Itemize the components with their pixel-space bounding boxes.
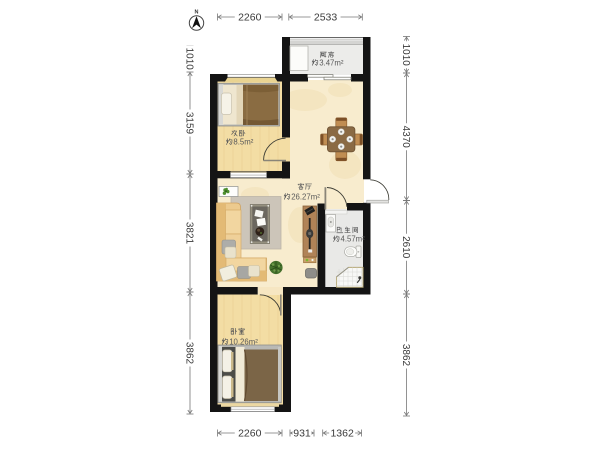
svg-text:1362: 1362: [330, 428, 354, 440]
svg-text:26.27m²: 26.27m²: [291, 192, 320, 201]
svg-text:3862: 3862: [184, 342, 195, 365]
svg-text:1010: 1010: [184, 48, 195, 71]
svg-text:3159: 3159: [184, 112, 195, 135]
svg-text:2260: 2260: [238, 12, 262, 24]
svg-text:8.5m²: 8.5m²: [233, 138, 253, 147]
svg-text:10.26m²: 10.26m²: [229, 337, 258, 346]
svg-text:4.57m²: 4.57m²: [341, 235, 366, 244]
svg-text:4370: 4370: [400, 126, 411, 149]
svg-text:2260: 2260: [238, 428, 262, 440]
svg-text:N: N: [195, 10, 199, 16]
svg-text:2610: 2610: [400, 236, 411, 259]
svg-text:3821: 3821: [184, 222, 195, 245]
svg-text:931: 931: [293, 428, 311, 440]
svg-text:3.47m²: 3.47m²: [319, 59, 344, 68]
svg-text:2533: 2533: [314, 12, 338, 24]
svg-text:1010: 1010: [400, 44, 411, 67]
svg-text:3862: 3862: [400, 344, 411, 367]
